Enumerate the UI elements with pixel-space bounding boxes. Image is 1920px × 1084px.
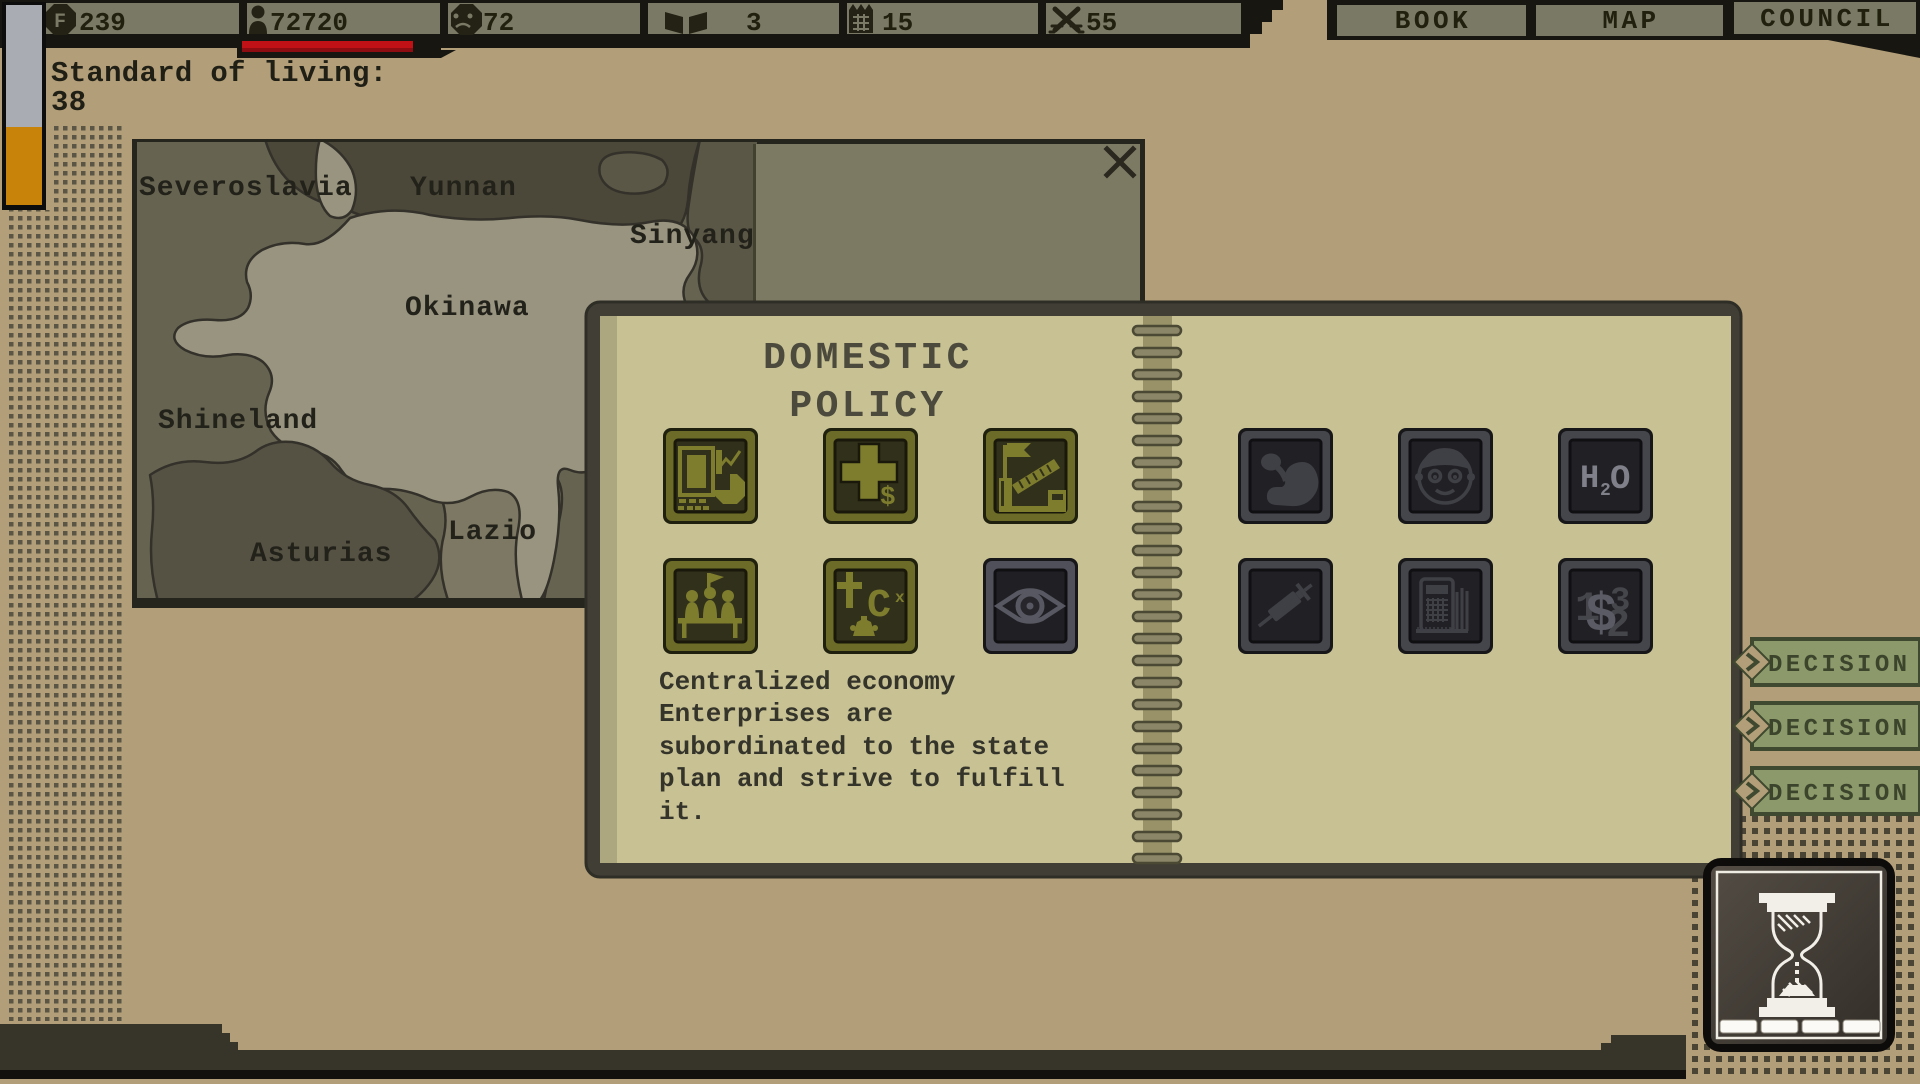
- svg-text:Severoslavia: Severoslavia: [139, 173, 353, 204]
- svg-text:H: H: [1580, 460, 1599, 497]
- svg-text:Yunnan: Yunnan: [410, 173, 517, 204]
- svg-text:x: x: [895, 589, 905, 607]
- svg-text:Standard of living:: Standard of living:: [51, 57, 387, 90]
- svg-text:Asturias: Asturias: [250, 539, 392, 570]
- svg-text:72720: 72720: [270, 8, 348, 38]
- svg-text:O: O: [1610, 461, 1630, 499]
- svg-text:MAP: MAP: [1602, 6, 1659, 36]
- svg-text:F: F: [54, 11, 66, 34]
- svg-text:it.: it.: [659, 797, 706, 827]
- svg-text:DOMESTIC: DOMESTIC: [763, 337, 973, 380]
- svg-text:72: 72: [483, 8, 514, 38]
- svg-text:55: 55: [1086, 8, 1117, 38]
- svg-text:Shineland: Shineland: [158, 406, 318, 437]
- svg-text:Okinawa: Okinawa: [405, 293, 530, 324]
- svg-text:subordinated to the state: subordinated to the state: [659, 732, 1049, 762]
- svg-text:239: 239: [79, 8, 126, 38]
- svg-text:Centralized economy: Centralized economy: [659, 667, 956, 697]
- svg-text:38: 38: [51, 86, 86, 119]
- svg-text:$: $: [880, 482, 896, 512]
- svg-text:Lazio: Lazio: [448, 517, 537, 548]
- svg-text:DECISION: DECISION: [1768, 781, 1910, 808]
- svg-text:POLICY: POLICY: [789, 385, 946, 428]
- svg-text:3: 3: [746, 8, 762, 38]
- svg-text:COUNCIL: COUNCIL: [1760, 4, 1894, 34]
- svg-text:plan and strive to fulfill: plan and strive to fulfill: [659, 764, 1065, 794]
- svg-text:DECISION: DECISION: [1768, 716, 1910, 743]
- svg-text:15: 15: [882, 8, 913, 38]
- svg-text:Sinyang: Sinyang: [630, 221, 755, 252]
- svg-text:Enterprises are: Enterprises are: [659, 699, 893, 729]
- svg-text:$: $: [1585, 586, 1617, 647]
- svg-text:DECISION: DECISION: [1768, 652, 1910, 679]
- svg-text:BOOK: BOOK: [1395, 6, 1471, 36]
